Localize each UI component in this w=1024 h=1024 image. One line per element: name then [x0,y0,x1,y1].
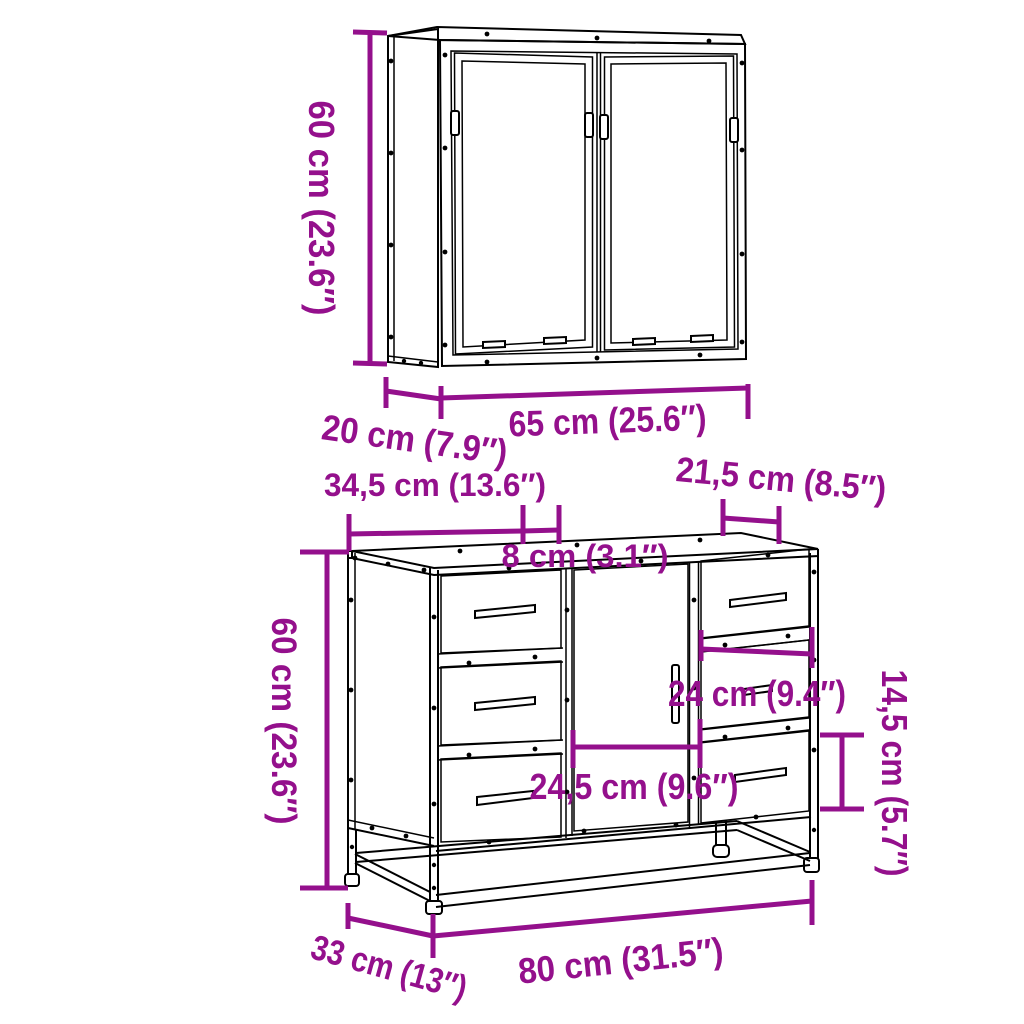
svg-text:8 cm (3.1″): 8 cm (3.1″) [502,538,669,574]
svg-text:14,5 cm (5.7″): 14,5 cm (5.7″) [874,670,915,877]
svg-text:34,5 cm (13.6″): 34,5 cm (13.6″) [324,467,546,503]
svg-text:65 cm (25.6″): 65 cm (25.6″) [508,397,707,445]
svg-text:60 cm (23.6″): 60 cm (23.6″) [264,618,303,825]
svg-text:60 cm (23.6″): 60 cm (23.6″) [301,101,342,316]
svg-text:24,5 cm (9.6″): 24,5 cm (9.6″) [530,766,739,807]
svg-text:24 cm (9.4″): 24 cm (9.4″) [668,673,846,714]
